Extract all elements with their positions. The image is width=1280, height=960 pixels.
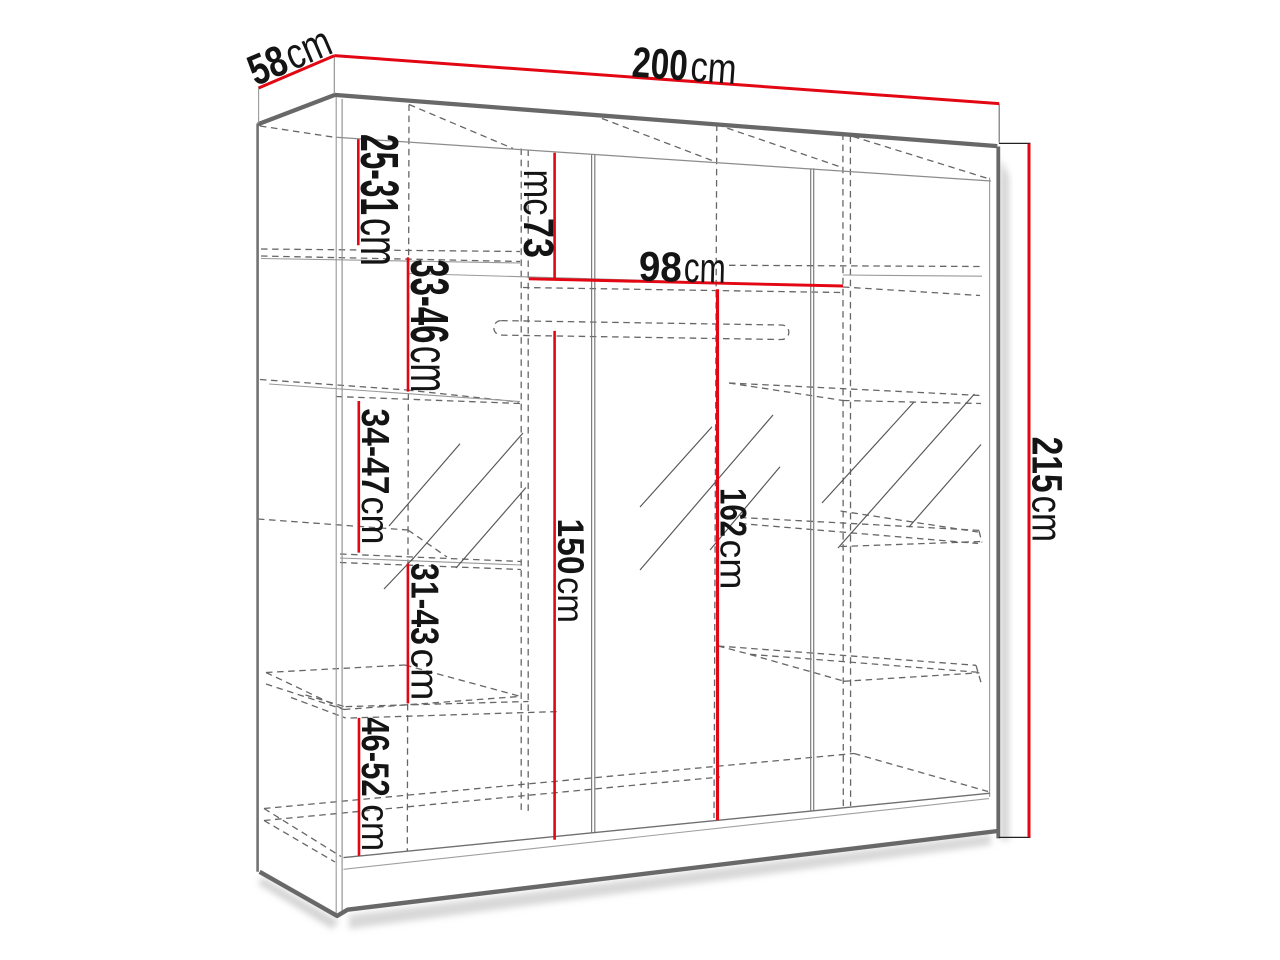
svg-text:150: 150 bbox=[550, 519, 591, 575]
svg-text:cm: cm bbox=[353, 497, 396, 545]
svg-text:200: 200 bbox=[631, 39, 690, 91]
svg-text:34-47: 34-47 bbox=[353, 409, 396, 495]
svg-text:cm: cm bbox=[713, 540, 754, 590]
svg-text:46-52: 46-52 bbox=[353, 717, 396, 797]
svg-text:cm: cm bbox=[550, 577, 591, 623]
svg-text:162: 162 bbox=[713, 488, 754, 537]
svg-text:215: 215 bbox=[1022, 437, 1070, 493]
svg-text:cm: cm bbox=[353, 804, 396, 851]
svg-text:cm: cm bbox=[1022, 496, 1070, 542]
svg-text:cm: cm bbox=[689, 43, 738, 94]
svg-text:cm: cm bbox=[399, 346, 459, 393]
svg-text:cm: cm bbox=[683, 244, 726, 292]
svg-text:31-43: 31-43 bbox=[402, 563, 445, 645]
svg-text:98: 98 bbox=[638, 243, 682, 291]
svg-text:cm: cm bbox=[402, 649, 445, 701]
svg-text:25-31: 25-31 bbox=[349, 134, 409, 215]
svg-text:33-46: 33-46 bbox=[399, 259, 459, 343]
svg-text:73: 73 bbox=[514, 218, 562, 258]
svg-text:mc: mc bbox=[514, 170, 562, 216]
